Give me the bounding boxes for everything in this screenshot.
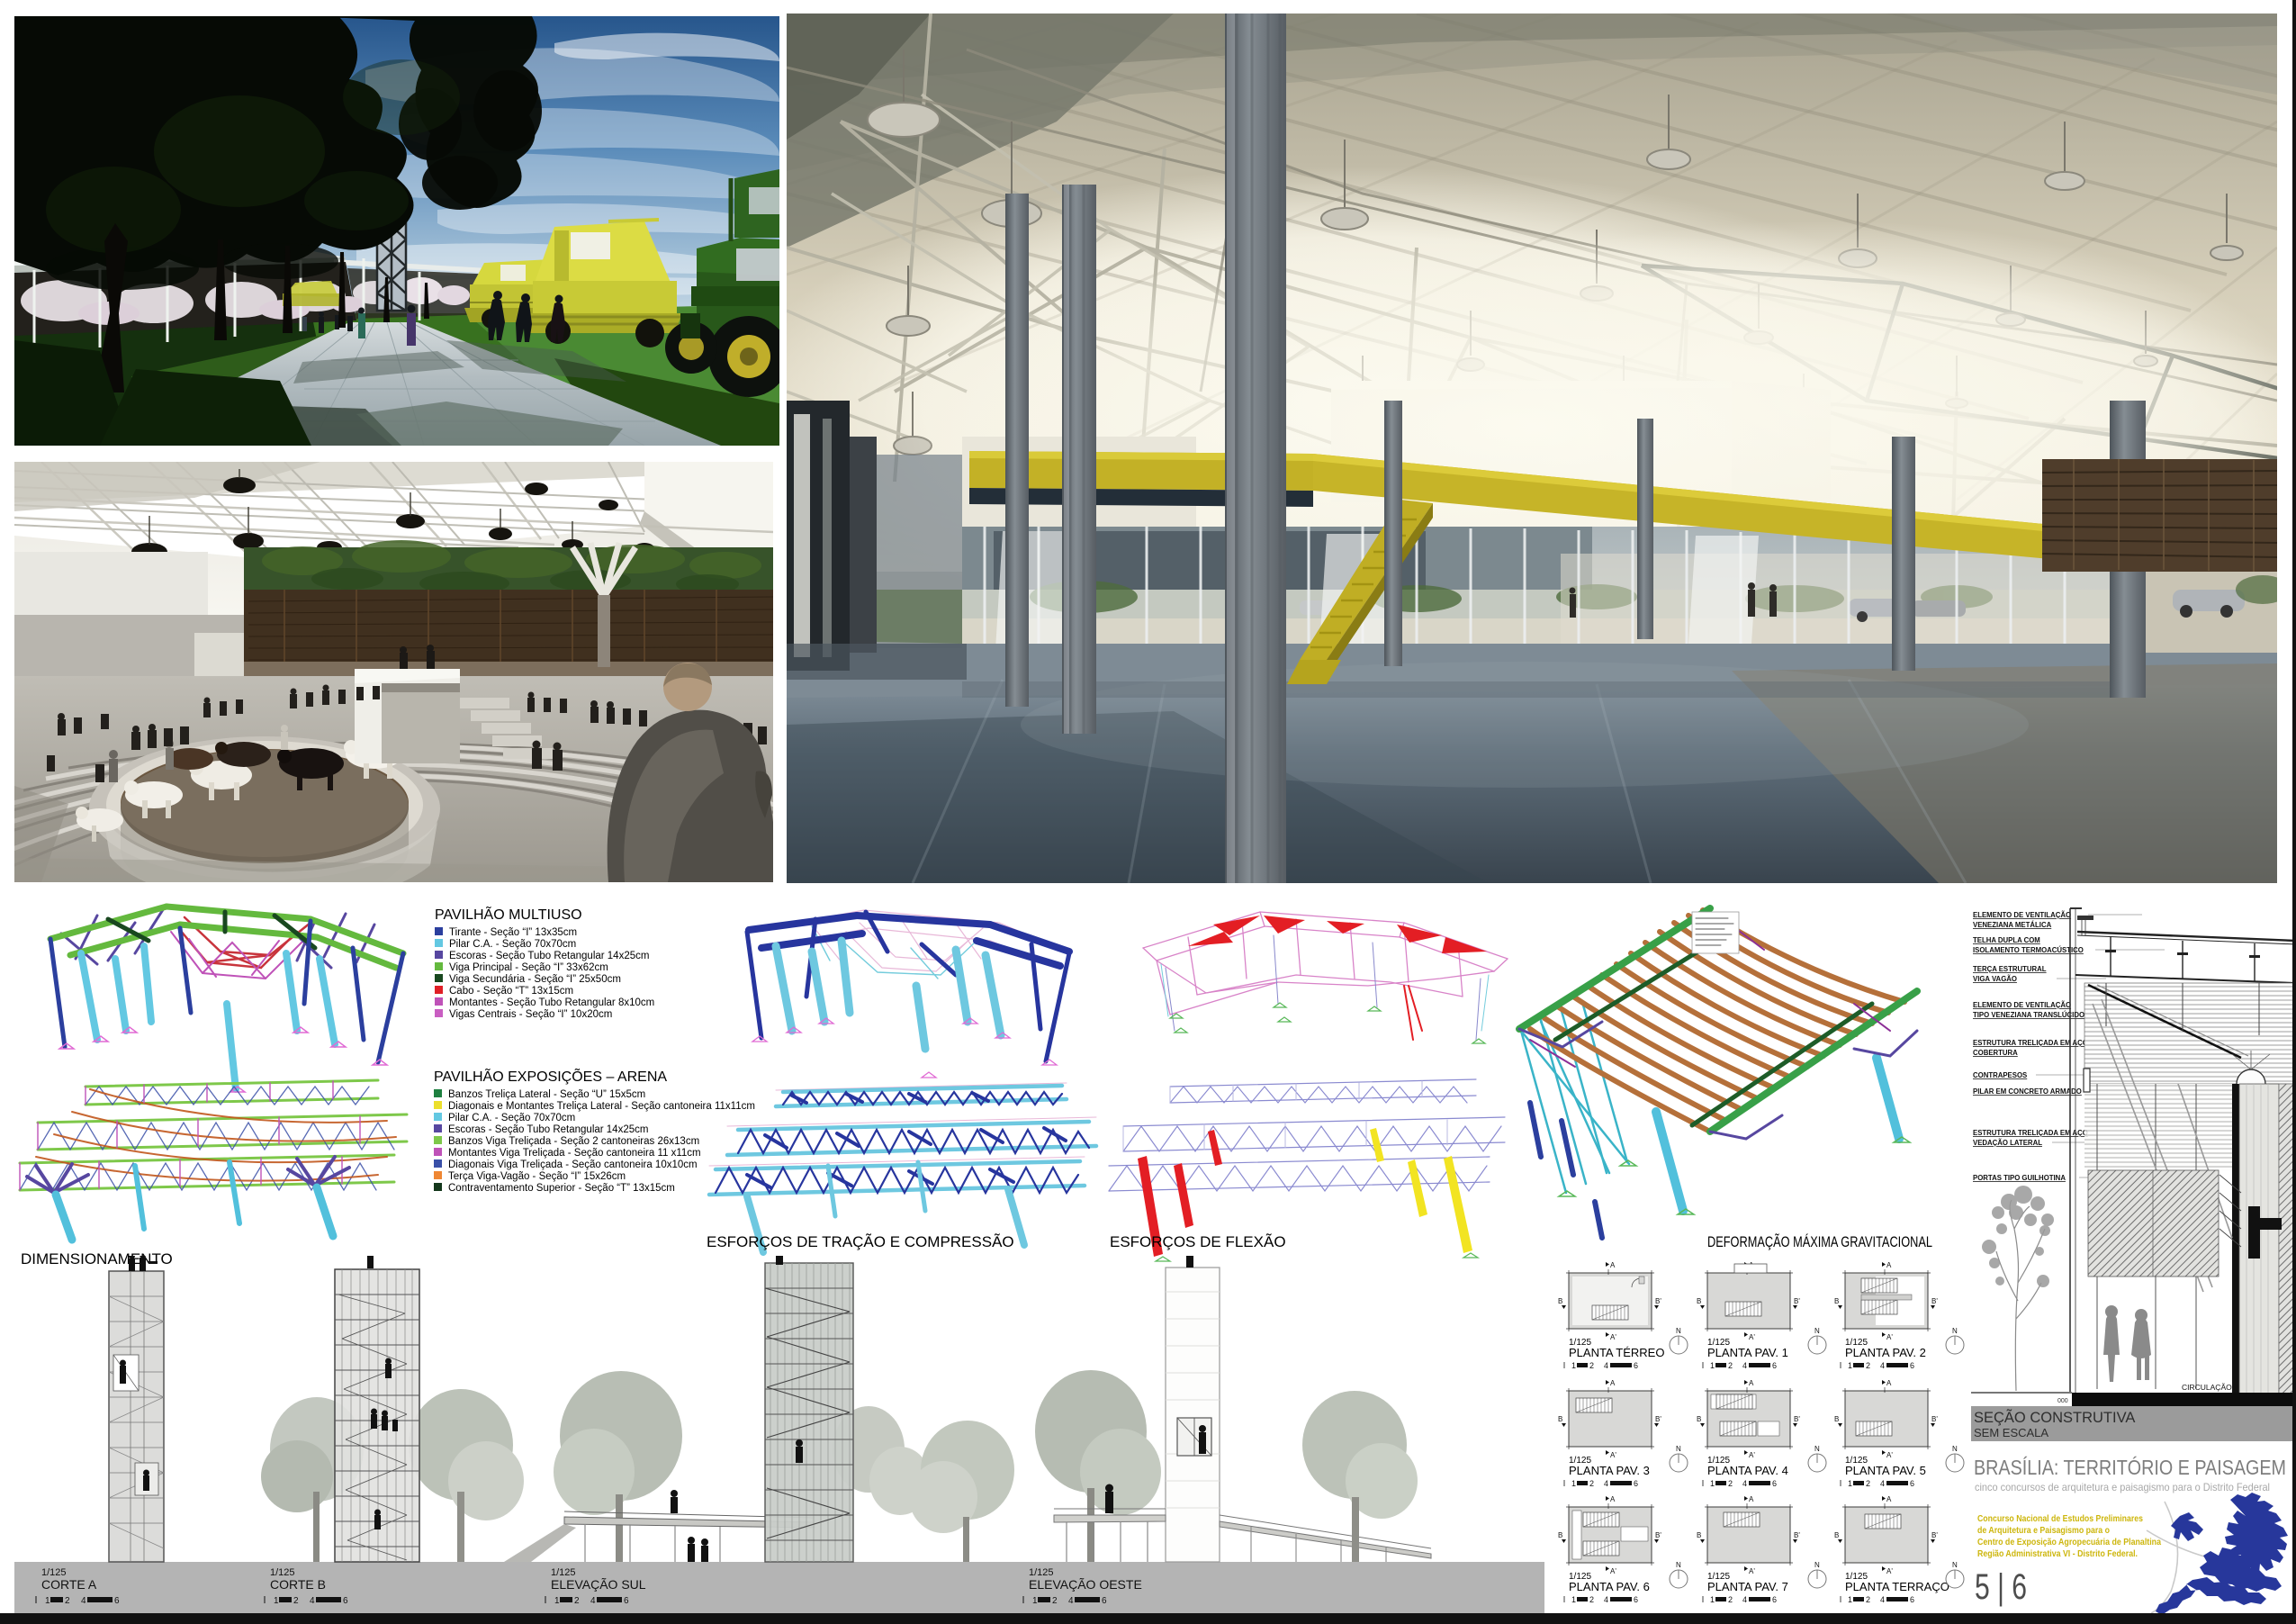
svg-text:Região Administrativa VI - Dis: Região Administrativa VI - Distrito Fede… [1977,1548,2138,1559]
svg-text:PLANTA PAV. 7: PLANTA PAV. 7 [1707,1580,1788,1593]
svg-text:Diagonais Viga Treliçada - Seç: Diagonais Viga Treliçada - Seção cantone… [448,1159,698,1170]
svg-text:1: 1 [45,1596,50,1606]
svg-text:Viga Principal - Seção “I” 33x: Viga Principal - Seção “I” 33x62cm [449,962,608,973]
svg-text:Escoras - Seção Tubo Retangula: Escoras - Seção Tubo Retangular 14x25cm [449,951,649,961]
svg-text:ESFORÇOS DE TRAÇÃO E COMPRESSÃ: ESFORÇOS DE TRAÇÃO E COMPRESSÃO [707,1233,1014,1250]
svg-text:PILAR EM CONCRETO ARMADO: PILAR EM CONCRETO ARMADO [1973,1087,2082,1096]
svg-text:2: 2 [65,1596,70,1606]
svg-text:2: 2 [1052,1596,1058,1606]
svg-text:4: 4 [310,1596,315,1606]
svg-text:VENEZIANA METÁLICA: VENEZIANA METÁLICA [1973,921,2052,929]
svg-text:ELEMENTO DE VENTILAÇÃO: ELEMENTO DE VENTILAÇÃO [1973,911,2071,919]
svg-text:Pilar C.A. - Seção 70x70cm: Pilar C.A. - Seção 70x70cm [448,1113,575,1123]
svg-text:4: 4 [81,1596,86,1606]
svg-text:1: 1 [1032,1596,1038,1606]
svg-text:Viga Secundária - Seção “I” 25: Viga Secundária - Seção “I” 25x50cm [449,974,621,985]
svg-text:CORTE A: CORTE A [41,1577,97,1592]
svg-text:Banzos Treliça Lateral - Seção: Banzos Treliça Lateral - Seção “U” 15x5c… [448,1089,645,1100]
svg-text:SEM ESCALA: SEM ESCALA [1974,1426,2048,1439]
svg-text:4: 4 [1068,1596,1074,1606]
svg-text:PAVILHÃO MULTIUSO: PAVILHÃO MULTIUSO [435,905,582,923]
svg-text:CORTE B: CORTE B [270,1577,326,1592]
svg-text:Cabo - Seção “T” 13x15cm: Cabo - Seção “T” 13x15cm [449,986,573,997]
svg-text:CONTRAPESOS: CONTRAPESOS [1973,1071,2027,1079]
svg-text:ISOLAMENTO TERMOACÚSTICO: ISOLAMENTO TERMOACÚSTICO [1973,946,2084,954]
svg-text:2: 2 [574,1596,580,1606]
svg-text:DEFORMAÇÃO MÁXIMA GRAVITACIONA: DEFORMAÇÃO MÁXIMA GRAVITACIONAL [1707,1233,1932,1250]
svg-text:PLANTA PAV. 2: PLANTA PAV. 2 [1845,1346,1926,1359]
svg-text:PLANTA PAV. 6: PLANTA PAV. 6 [1569,1580,1650,1593]
svg-text:de Arquitetura e Paisagismo pa: de Arquitetura e Paisagismo para o [1977,1525,2110,1536]
svg-text:cinco concursos de arquitetura: cinco concursos de arquitetura e paisagi… [1975,1481,2270,1493]
svg-text:SEÇÃO CONSTRUTIVA: SEÇÃO CONSTRUTIVA [1974,1408,2135,1426]
svg-text:Montantes - Seção Tubo Retangu: Montantes - Seção Tubo Retangular 8x10cm [449,997,654,1008]
svg-text:COBERTURA: COBERTURA [1973,1049,2018,1057]
svg-text:PLANTA PAV. 1: PLANTA PAV. 1 [1707,1346,1788,1359]
svg-text:ELEMENTO DE VENTILAÇÃO: ELEMENTO DE VENTILAÇÃO [1973,1001,2071,1009]
svg-text:Centro de Exposição Agropecuár: Centro de Exposição Agropecuária de Plan… [1977,1537,2161,1547]
svg-text:Montantes Viga Treliçada - Seç: Montantes Viga Treliçada - Seção cantone… [448,1148,701,1159]
svg-text:VIGA VAGÃO: VIGA VAGÃO [1973,975,2017,983]
svg-text:2: 2 [293,1596,299,1606]
svg-text:4: 4 [590,1596,596,1606]
svg-text:PLANTA TERRAÇO: PLANTA TERRAÇO [1845,1580,1949,1593]
svg-text:Concurso Nacional de Estudos P: Concurso Nacional de Estudos Preliminare… [1977,1513,2143,1524]
svg-text:TELHA DUPLA COM: TELHA DUPLA COM [1973,936,2040,944]
svg-text:PLANTA PAV. 5: PLANTA PAV. 5 [1845,1464,1926,1477]
svg-text:ESFORÇOS DE FLEXÃO: ESFORÇOS DE FLEXÃO [1110,1233,1286,1250]
svg-text:6: 6 [343,1596,348,1606]
svg-text:Pilar C.A. - Seção 70x70cm: Pilar C.A. - Seção 70x70cm [449,939,576,950]
svg-text:VEDAÇÃO LATERAL: VEDAÇÃO LATERAL [1973,1139,2042,1147]
svg-text:CIRCULAÇÃO: CIRCULAÇÃO [2182,1383,2232,1392]
svg-text:Tirante - Seção “I” 13x35cm: Tirante - Seção “I” 13x35cm [449,927,577,938]
svg-text:Banzos Viga Treliçada - Seção: Banzos Viga Treliçada - Seção 2 cantonei… [448,1136,699,1147]
svg-text:1: 1 [274,1596,279,1606]
svg-text:PAVILHÃO EXPOSIÇÕES – ARENA: PAVILHÃO EXPOSIÇÕES – ARENA [434,1067,667,1085]
svg-text:6: 6 [1102,1596,1107,1606]
svg-text:TIPO VENEZIANA TRANSLÚCIDO: TIPO VENEZIANA TRANSLÚCIDO [1973,1011,2084,1019]
svg-text:PLANTA PAV. 3: PLANTA PAV. 3 [1569,1464,1650,1477]
svg-text:ELEVAÇÃO SUL: ELEVAÇÃO SUL [551,1577,646,1592]
svg-text:1: 1 [554,1596,560,1606]
svg-text:Diagonais e Montantes Treliça: Diagonais e Montantes Treliça Lateral - … [448,1101,755,1112]
svg-text:6: 6 [114,1596,120,1606]
svg-text:000: 000 [2057,1398,2068,1404]
svg-text:Escoras - Seção Tubo Retangula: Escoras - Seção Tubo Retangular 14x25cm [448,1124,648,1135]
svg-text:Vigas Centrais - Seção “I” 10x: Vigas Centrais - Seção “I” 10x20cm [449,1009,612,1020]
svg-text:Contraventamento Superior - Se: Contraventamento Superior - Seção “T” 13… [448,1183,675,1194]
svg-text:Terça Viga-Vagão - Seção “I” 1: Terça Viga-Vagão - Seção “I” 15x26cm [448,1171,626,1182]
svg-text:PLANTA PAV. 4: PLANTA PAV. 4 [1707,1464,1788,1477]
svg-text:BRASÍLIA: TERRITÓRIO E PAISAGE: BRASÍLIA: TERRITÓRIO E PAISAGEM [1974,1456,2286,1479]
svg-text:PLANTA TÉRREO: PLANTA TÉRREO [1569,1346,1664,1359]
svg-text:ELEVAÇÃO OESTE: ELEVAÇÃO OESTE [1029,1577,1142,1592]
svg-text:6: 6 [624,1596,629,1606]
svg-text:TERÇA ESTRUTURAL: TERÇA ESTRUTURAL [1973,965,2047,973]
svg-text:PORTAS TIPO GUILHOTINA: PORTAS TIPO GUILHOTINA [1973,1174,2066,1182]
svg-text:5 | 6: 5 | 6 [1975,1567,2027,1607]
